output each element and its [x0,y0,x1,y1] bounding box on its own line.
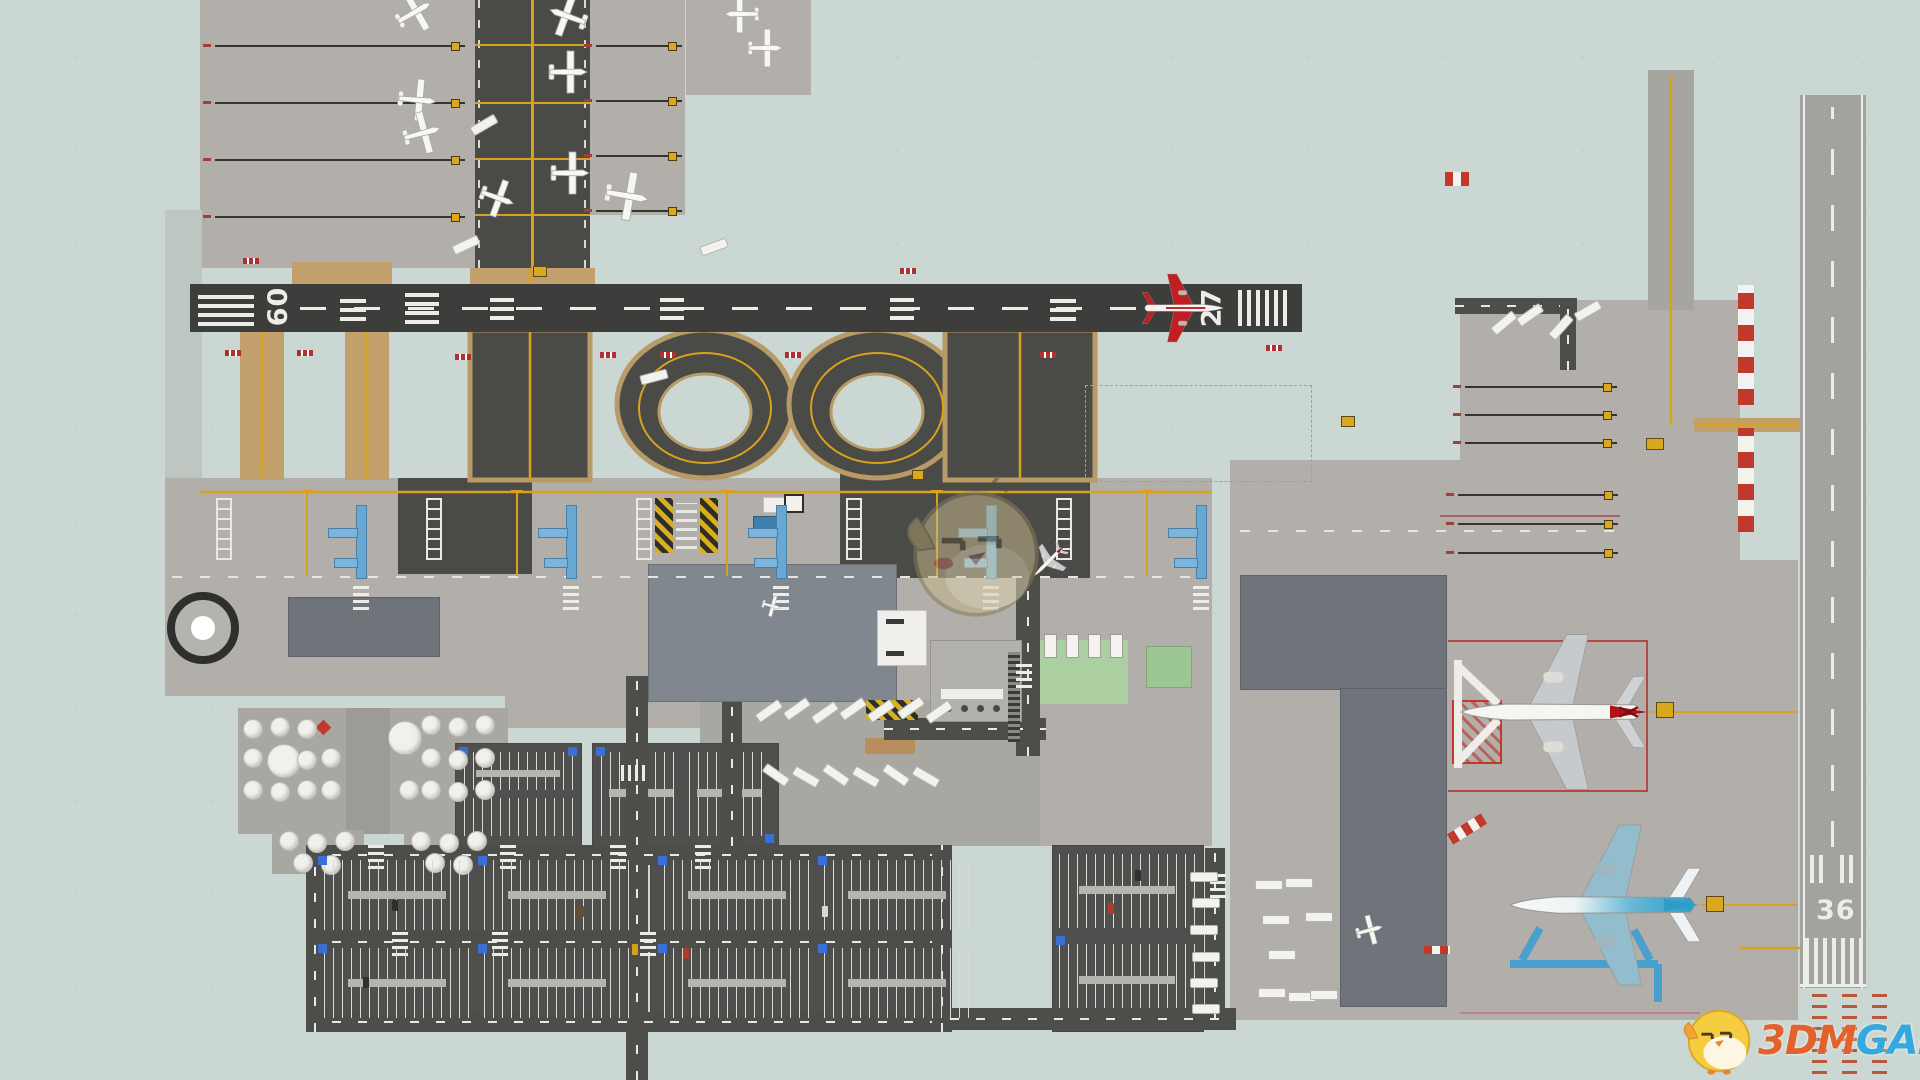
small-aircraft[interactable] [549,51,587,93]
3dm-chick-faint-watermark [900,478,1052,630]
small-aircraft[interactable] [551,152,589,194]
airport-map: 09 27 36 [0,0,1920,1080]
small-aircraft[interactable] [543,0,593,43]
small-aircraft[interactable] [387,0,441,40]
small-aircraft[interactable] [398,108,446,158]
small-aircraft[interactable] [760,593,784,618]
small-aircraft[interactable] [1353,913,1386,948]
small-aircraft[interactable] [475,174,520,221]
watermark-text-3dm: 3DM [1758,1018,1856,1064]
watermark-text-game: GAME [1856,1018,1920,1064]
airliner-red-tail-at-gate[interactable] [1461,635,1647,790]
airliner-on-runway-27[interactable] [1142,274,1223,342]
small-aircraft[interactable] [601,168,652,223]
watermark-3dmgame: 3DMGAME [1680,1002,1920,1080]
3dm-chick-logo-icon [1680,1002,1758,1080]
small-aircraft[interactable] [748,29,782,67]
small-aircraft[interactable] [725,0,759,33]
